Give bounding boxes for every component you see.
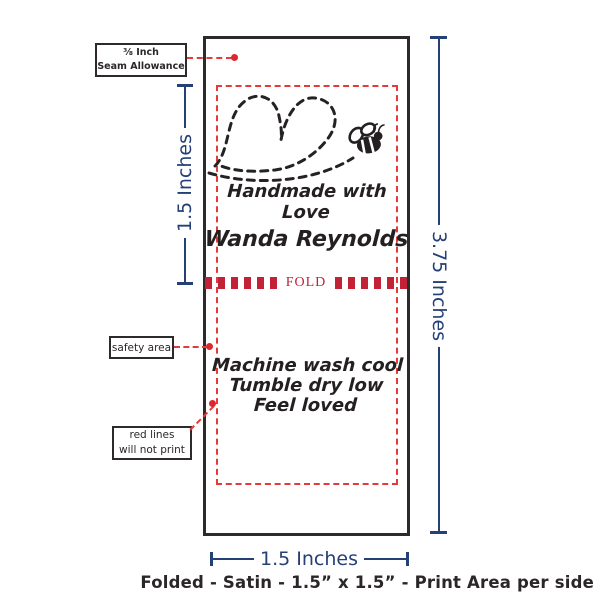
red-lines-line2: will not print — [114, 443, 190, 458]
safety-area-pointer-dot — [206, 343, 213, 350]
total-height-dimension-label: 3.75 Inches — [427, 225, 451, 347]
seam-allowance-arrow — [187, 57, 232, 59]
care-line: Feel loved — [201, 396, 409, 416]
care-instructions-text: Machine wash cool Tumble dry low Feel lo… — [201, 356, 411, 416]
dimension-cap — [177, 84, 193, 87]
width-dimension-label: 1.5 Inches — [254, 547, 364, 571]
red-lines-pointer-dot — [209, 400, 216, 407]
care-line: Machine wash cool — [204, 356, 412, 376]
label-template-diagram: Handmade with Love Wanda Reynolds FOLD M… — [0, 0, 600, 600]
dimension-cap — [406, 552, 409, 566]
dimension-cap — [177, 282, 193, 285]
safety-area-arrow — [174, 346, 208, 348]
fold-half-dimension-label: 1.5 Inches — [173, 128, 197, 238]
product-spec-caption: Folded - Satin - 1.5” x 1.5” - Print Are… — [140, 573, 594, 592]
bee-icon — [344, 117, 392, 161]
red-lines-callout: red lines will not print — [112, 426, 192, 460]
red-lines-line1: red lines — [114, 428, 190, 443]
front-message-text: Handmade with Love — [202, 181, 411, 223]
fold-label: FOLD — [281, 275, 332, 291]
safety-area-callout: safety area — [109, 336, 174, 359]
seam-allowance-line2: Seam Allowance — [97, 60, 185, 74]
safety-area-label: safety area — [111, 342, 172, 354]
dimension-cap — [210, 552, 213, 566]
fold-line: FOLD — [205, 277, 407, 289]
seam-allowance-line1: ⅜ Inch — [97, 46, 185, 60]
seam-allowance-pointer-dot — [231, 54, 238, 61]
dimension-cap — [430, 531, 447, 534]
seam-allowance-callout: ⅜ Inch Seam Allowance — [95, 43, 187, 77]
care-line: Tumble dry low — [202, 376, 410, 396]
dimension-cap — [430, 36, 447, 39]
stitched-heart-icon — [205, 88, 410, 188]
maker-name-text: Wanda Reynolds — [202, 227, 410, 252]
